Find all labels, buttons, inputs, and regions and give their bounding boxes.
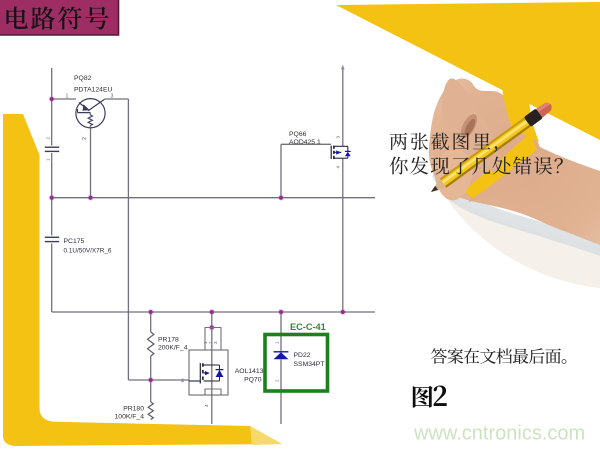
- svg-text:2: 2: [275, 379, 280, 382]
- svg-text:3: 3: [111, 94, 114, 100]
- svg-text:0.1U/50V/X7R_6: 0.1U/50V/X7R_6: [64, 248, 112, 255]
- svg-text:PQ70: PQ70: [244, 377, 262, 384]
- svg-text:PDTA124EU: PDTA124EU: [74, 87, 112, 94]
- svg-text:PR178: PR178: [158, 337, 179, 344]
- svg-text:1: 1: [46, 158, 51, 161]
- svg-text:100K/F_4: 100K/F_4: [115, 414, 145, 421]
- svg-text:PQ82: PQ82: [74, 75, 92, 82]
- svg-text:4: 4: [204, 404, 209, 407]
- svg-text:AOD425 1: AOD425 1: [289, 139, 321, 146]
- svg-text:www.cntronics.com: www.cntronics.com: [413, 423, 585, 445]
- svg-text:PD22: PD22: [294, 352, 311, 359]
- svg-text:PR180: PR180: [123, 406, 144, 413]
- svg-text:1: 1: [275, 341, 280, 344]
- svg-text:4: 4: [336, 166, 341, 169]
- svg-text:2: 2: [46, 137, 51, 140]
- svg-text:3: 3: [213, 341, 218, 344]
- svg-text:200K/F_4: 200K/F_4: [158, 345, 188, 352]
- svg-text:EC-C-41: EC-C-41: [290, 322, 326, 332]
- svg-text:PQ66: PQ66: [289, 131, 307, 138]
- svg-text:2: 2: [82, 137, 88, 140]
- svg-text:SSM34PT: SSM34PT: [294, 361, 325, 368]
- svg-text:3: 3: [336, 136, 341, 139]
- svg-text:1: 1: [66, 94, 69, 100]
- svg-text:4: 4: [181, 379, 184, 385]
- svg-text:PC175: PC175: [64, 238, 85, 245]
- svg-text:AOL1413: AOL1413: [235, 368, 264, 375]
